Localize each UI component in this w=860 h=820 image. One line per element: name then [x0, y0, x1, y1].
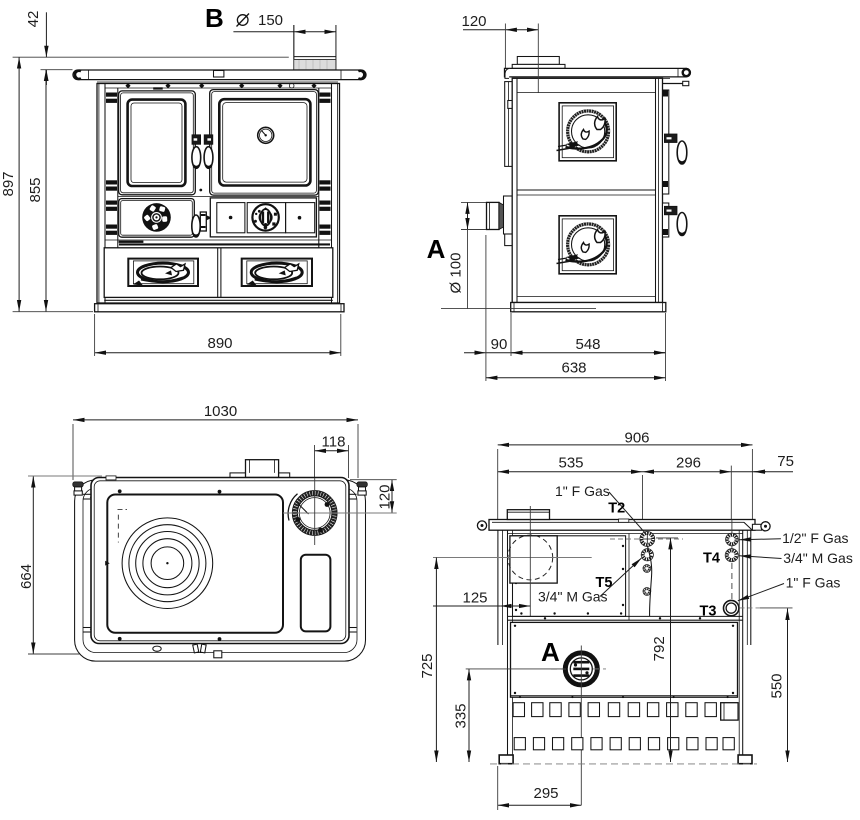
- svg-text:906: 906: [624, 430, 649, 447]
- svg-text:125: 125: [462, 590, 487, 607]
- svg-text:A: A: [427, 234, 446, 264]
- svg-text:150: 150: [258, 12, 283, 29]
- svg-text:296: 296: [676, 455, 701, 472]
- svg-text:725: 725: [419, 653, 436, 678]
- svg-text:3/4" M Gas: 3/4" M Gas: [783, 550, 853, 566]
- svg-text:T4: T4: [703, 551, 720, 567]
- svg-text:855: 855: [27, 177, 44, 202]
- svg-text:B: B: [205, 3, 224, 33]
- svg-text:120: 120: [376, 484, 393, 509]
- svg-text:3/4" M Gas: 3/4" M Gas: [538, 589, 608, 605]
- svg-text:T3: T3: [700, 604, 717, 620]
- svg-text:535: 535: [558, 455, 583, 472]
- svg-text:335: 335: [452, 703, 469, 728]
- svg-text:1" F Gas: 1" F Gas: [786, 575, 841, 591]
- svg-text:548: 548: [575, 336, 600, 353]
- svg-text:792: 792: [651, 636, 668, 661]
- svg-text:118: 118: [322, 434, 346, 451]
- svg-text:890: 890: [207, 335, 232, 352]
- svg-text:664: 664: [18, 564, 35, 589]
- svg-text:42: 42: [25, 11, 42, 28]
- svg-text:638: 638: [561, 360, 586, 377]
- svg-text:1" F Gas: 1" F Gas: [555, 483, 610, 499]
- svg-text:Ø 100: Ø 100: [447, 253, 464, 294]
- svg-text:90: 90: [491, 336, 508, 353]
- svg-text:295: 295: [533, 785, 558, 802]
- svg-text:120: 120: [461, 13, 486, 30]
- svg-text:897: 897: [0, 171, 17, 196]
- svg-text:75: 75: [777, 453, 794, 470]
- svg-text:1030: 1030: [204, 403, 237, 420]
- svg-text:1/2" F Gas: 1/2" F Gas: [782, 530, 848, 546]
- svg-text:550: 550: [768, 673, 785, 698]
- svg-text:T2: T2: [608, 501, 625, 517]
- svg-text:A: A: [541, 637, 560, 667]
